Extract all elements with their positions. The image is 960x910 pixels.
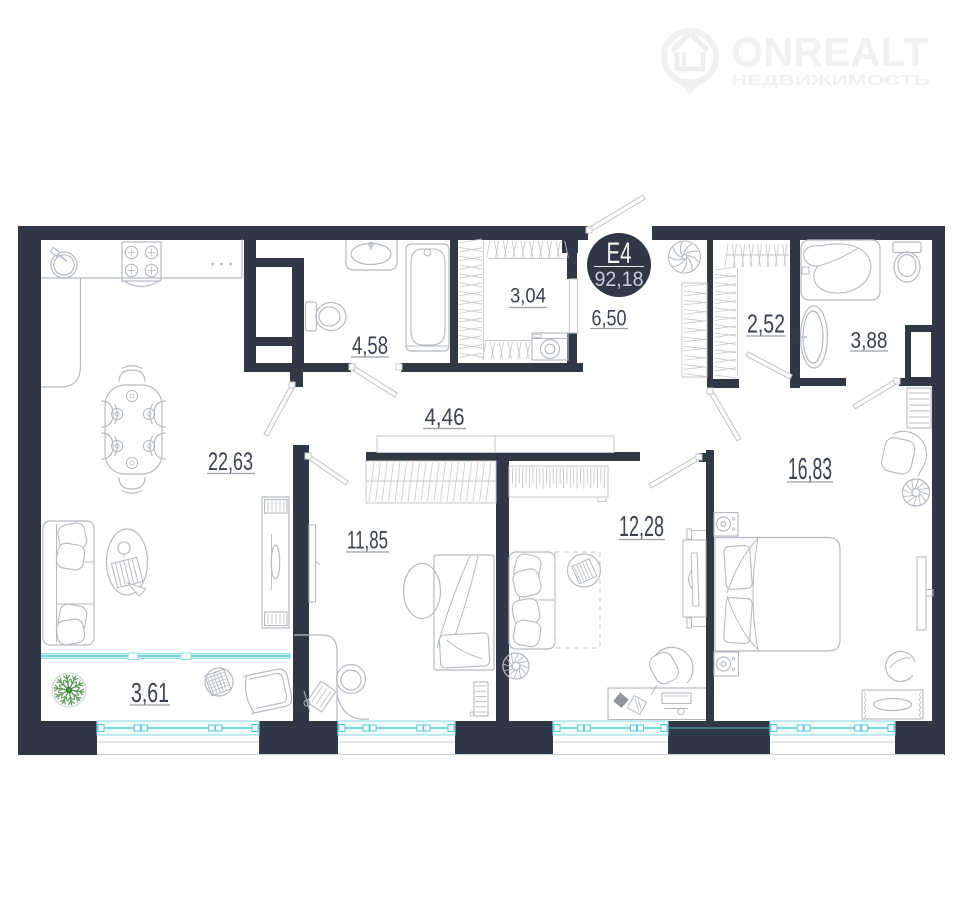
svg-text:92,18: 92,18	[595, 268, 644, 291]
svg-text:22,63: 22,63	[208, 448, 253, 476]
svg-text:3,88: 3,88	[851, 327, 888, 353]
svg-text:11,85: 11,85	[347, 527, 388, 555]
svg-text:16,83: 16,83	[788, 451, 832, 486]
svg-text:4,46: 4,46	[425, 404, 465, 431]
svg-text:4,58: 4,58	[352, 332, 388, 360]
svg-text:НЕДВИЖИМОСТЬ: НЕДВИЖИМОСТЬ	[731, 72, 930, 89]
svg-text:Е4: Е4	[607, 237, 632, 270]
svg-text:6,50: 6,50	[592, 306, 627, 331]
svg-text:2,52: 2,52	[747, 309, 785, 339]
svg-text:ONREALT: ONREALT	[731, 29, 928, 75]
svg-text:12,28: 12,28	[619, 511, 664, 543]
svg-text:3,04: 3,04	[510, 285, 546, 308]
svg-text:3,61: 3,61	[131, 677, 169, 708]
